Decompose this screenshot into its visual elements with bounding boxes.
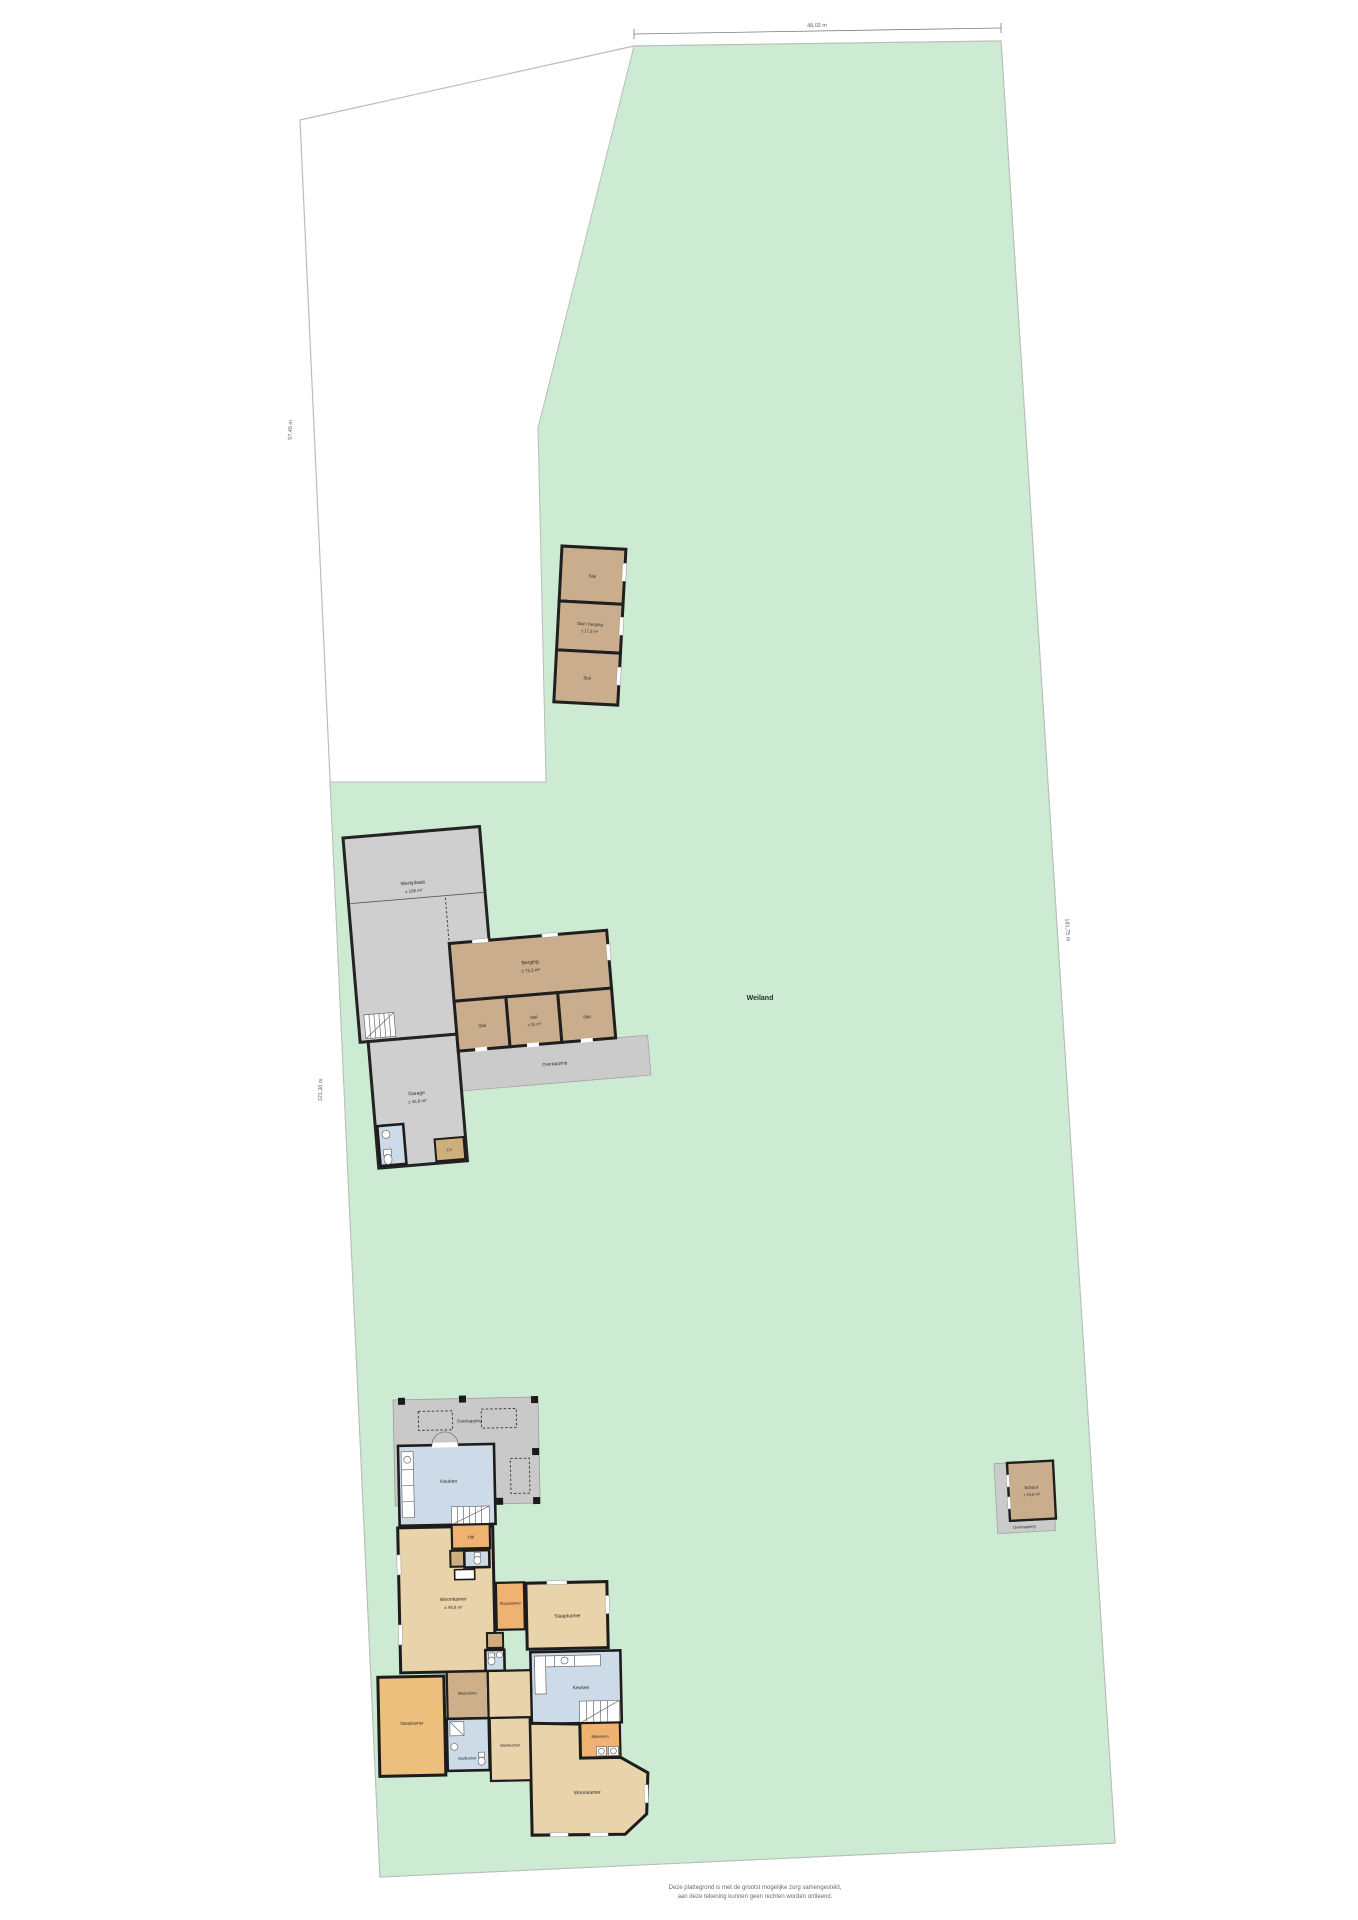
barn-stal-mid <box>506 993 562 1047</box>
house-bathroom-small <box>485 1650 504 1671</box>
sink-icon <box>451 1743 458 1750</box>
stable-north: Stal Stal / berging ± 17,2 m² Stal <box>554 546 628 705</box>
window <box>590 1832 608 1836</box>
house-closet1 <box>450 1551 464 1567</box>
house-workroom <box>490 1717 531 1781</box>
stable-north-room-2 <box>557 601 623 653</box>
house-bathroom2-label: Badkamer <box>458 1755 477 1760</box>
dimension-right-label: 181,75 m <box>1063 918 1070 942</box>
floorplan-page: 48,02 m 57,45 m 121,30 m 181,75 m Weilan… <box>0 0 1358 1920</box>
house-bedroom1 <box>496 1582 525 1630</box>
house-bedroom2-label: Slaapkamer <box>554 1613 581 1620</box>
barn-stal-right-label: Stal <box>583 1014 591 1020</box>
shed-room <box>1007 1461 1056 1521</box>
window <box>605 1596 609 1614</box>
house-living1-area: ± 48,6 m² <box>444 1605 463 1610</box>
house-meter-closet <box>455 1569 475 1579</box>
window <box>1006 1475 1010 1487</box>
window <box>644 1785 648 1803</box>
kitchen1-counter <box>401 1452 414 1518</box>
house-workroom-label: Werkkamer <box>500 1742 521 1747</box>
sink-icon <box>404 1456 411 1463</box>
barn-stairs <box>364 1012 396 1038</box>
house-wc <box>464 1550 489 1568</box>
house-bedroom3 <box>378 1676 446 1776</box>
shed-area: ± 24,8 m² <box>1023 1491 1041 1497</box>
window <box>547 1580 567 1584</box>
stable-north-room1-label: Stal <box>589 573 597 578</box>
dimension-top: 48,02 m <box>634 23 1001 39</box>
window <box>398 1625 402 1645</box>
dimension-left-upper-label: 57,45 m <box>288 420 295 440</box>
house-kitchen2-label: Keuken <box>573 1685 590 1691</box>
dimension-top-label: 48,02 m <box>807 23 827 29</box>
sink-icon <box>496 1652 502 1658</box>
shed-east: Schuur ± 24,8 m² Overkapping <box>994 1461 1057 1534</box>
house-kitchen1-label: Keuken <box>440 1479 457 1485</box>
dimension-left-lower-label: 121,30 m <box>318 1078 325 1102</box>
window <box>619 617 624 635</box>
stable-north-room3-label: Stal <box>583 675 591 680</box>
shed-label: Schuur <box>1024 1484 1039 1490</box>
house-corridor <box>488 1670 532 1718</box>
house-stairs1 <box>451 1506 489 1525</box>
barn-stal-mid-label: Stal <box>530 1014 538 1020</box>
window <box>622 563 627 581</box>
window <box>550 1832 568 1836</box>
barn-cv-label: CV <box>446 1147 452 1152</box>
toilet-icon <box>478 1752 484 1757</box>
house-bijkeuken: Bijkeuken <box>580 1722 621 1758</box>
house-living2-label: Woonkamer <box>574 1790 601 1797</box>
house-bedroom3-label: Slaapkamer <box>400 1720 424 1726</box>
house-hall-label: Hal <box>468 1534 475 1539</box>
house-living1-label: Woonkamer <box>440 1596 467 1603</box>
house-closet2 <box>487 1633 503 1648</box>
footer-line2: aan deze tekening kunnen geen rechten wo… <box>678 1894 833 1900</box>
window <box>397 1555 401 1575</box>
house-bathroom2: Badkamer <box>447 1718 490 1771</box>
house-bedroom1-label: Slaapkamer <box>500 1600 522 1605</box>
footer-line1: Deze plattegrond is met de grootst mogel… <box>669 1885 842 1891</box>
site-plan: 48,02 m 57,45 m 121,30 m 181,75 m Weilan… <box>0 0 1358 1920</box>
window <box>1007 1497 1011 1509</box>
stable-north-room2-area: ± 17,2 m² <box>581 628 599 634</box>
house-terrace-label: Overkapping <box>457 1418 483 1424</box>
barn-bathroom <box>377 1124 406 1166</box>
house-laundry-label: Wasruimte <box>458 1690 478 1695</box>
field-label: Weiland <box>747 995 774 1002</box>
house-stairs2 <box>579 1700 619 1723</box>
sink-icon <box>561 1657 568 1664</box>
sink-icon <box>382 1130 391 1139</box>
barn-stal-left-label: Stal <box>478 1023 486 1029</box>
window <box>616 667 621 685</box>
house-bijkeuken-label: Bijkeuken <box>591 1734 608 1739</box>
